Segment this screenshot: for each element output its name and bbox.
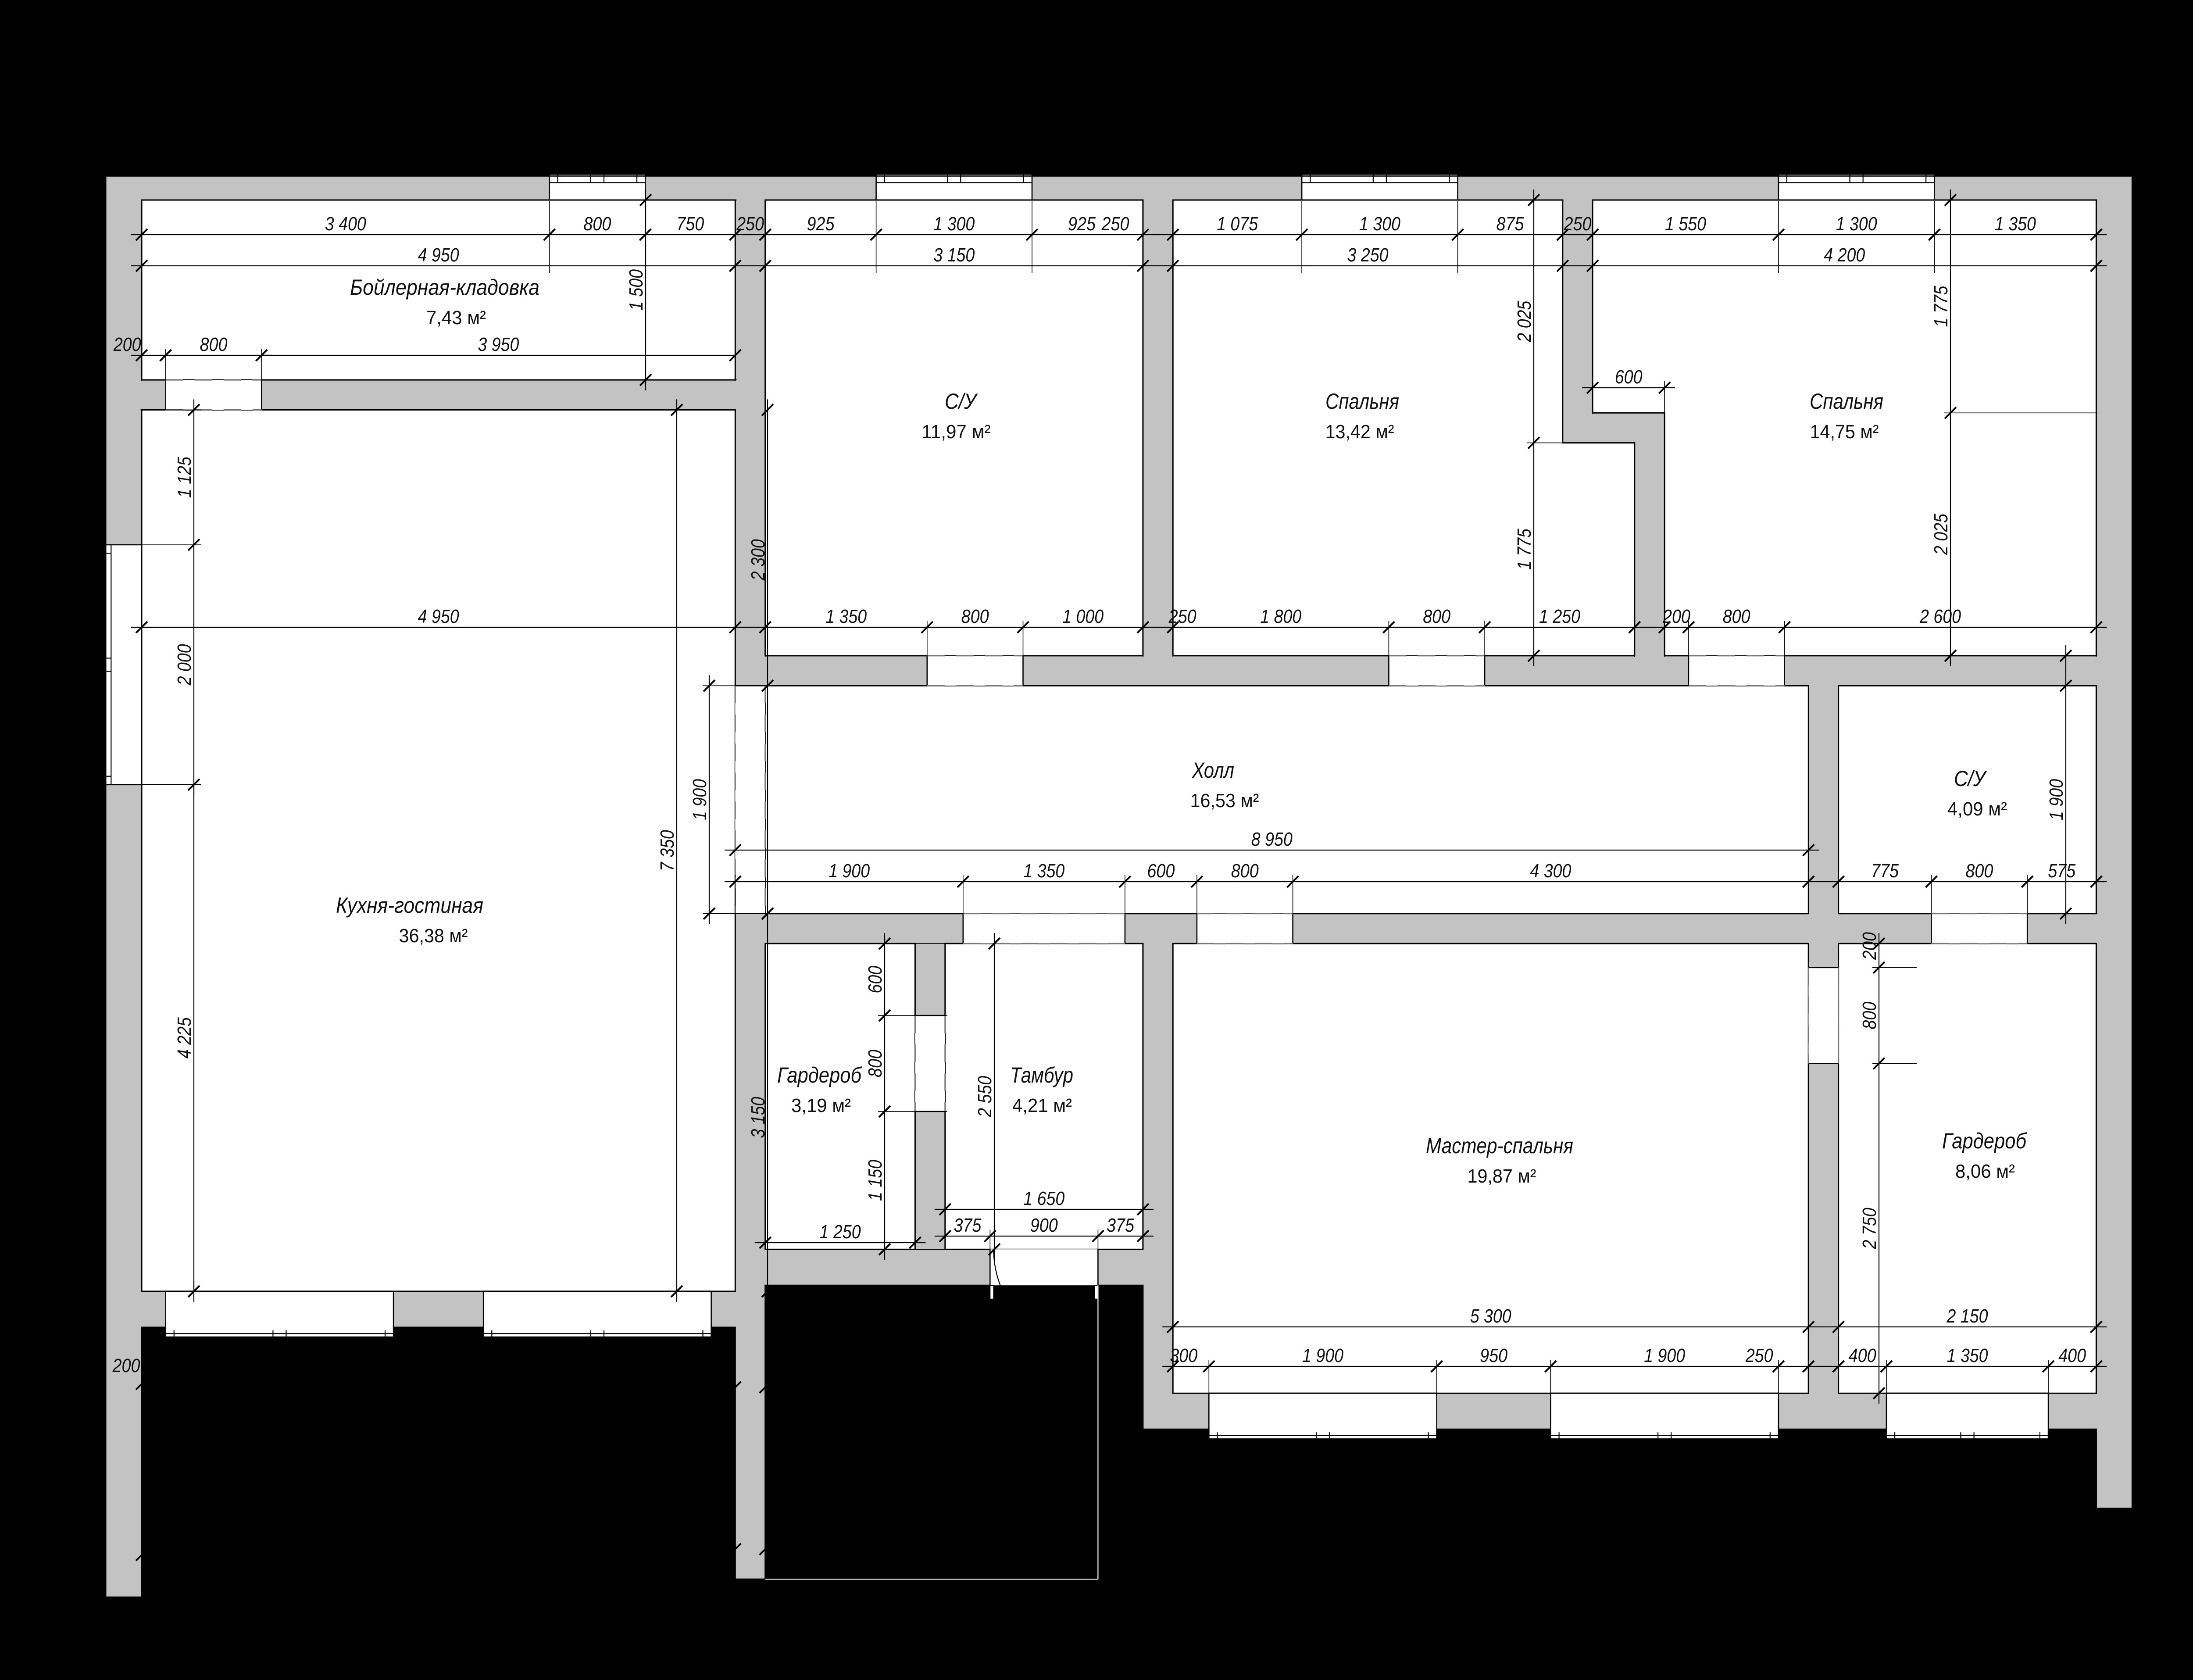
svg-text:400: 400 xyxy=(1849,1345,1876,1366)
svg-text:800: 800 xyxy=(583,213,611,235)
svg-text:8,06 м²: 8,06 м² xyxy=(1955,1161,2015,1182)
svg-text:2 025: 2 025 xyxy=(1930,514,1952,555)
svg-text:1 125: 1 125 xyxy=(174,457,195,498)
svg-text:925: 925 xyxy=(1068,213,1096,235)
svg-text:4 225: 4 225 xyxy=(174,1017,195,1058)
svg-text:1 775: 1 775 xyxy=(1930,286,1952,327)
svg-text:200: 200 xyxy=(113,334,141,355)
svg-text:800: 800 xyxy=(1859,1001,1880,1029)
svg-text:250: 250 xyxy=(1101,213,1129,235)
svg-text:800: 800 xyxy=(1965,860,1993,882)
svg-text:3 950: 3 950 xyxy=(478,334,519,355)
svg-text:575: 575 xyxy=(2048,860,2075,882)
svg-text:4 950: 4 950 xyxy=(418,606,459,627)
svg-text:Мастер-спальня: Мастер-спальня xyxy=(1426,1133,1573,1158)
svg-text:950: 950 xyxy=(1480,1345,1507,1366)
svg-text:19,87 м²: 19,87 м² xyxy=(1468,1165,1536,1187)
svg-text:1 150: 1 150 xyxy=(864,1160,886,1201)
svg-text:250: 250 xyxy=(1168,606,1197,627)
svg-text:800: 800 xyxy=(1231,860,1259,882)
svg-text:4 300: 4 300 xyxy=(1530,860,1571,882)
svg-text:1 650: 1 650 xyxy=(1023,1188,1064,1209)
svg-text:1 900: 1 900 xyxy=(2046,779,2067,820)
svg-text:250: 250 xyxy=(1564,213,1592,235)
svg-text:2 000: 2 000 xyxy=(174,644,195,686)
svg-text:925: 925 xyxy=(807,213,835,235)
svg-text:1 350: 1 350 xyxy=(825,606,867,627)
svg-text:3 400: 3 400 xyxy=(325,213,366,235)
svg-text:1 500: 1 500 xyxy=(625,269,647,311)
svg-text:250: 250 xyxy=(736,213,764,235)
svg-text:4,21 м²: 4,21 м² xyxy=(1012,1095,1072,1116)
svg-text:800: 800 xyxy=(1423,606,1450,627)
svg-text:Холл: Холл xyxy=(1192,758,1234,783)
svg-text:4 950: 4 950 xyxy=(418,244,459,266)
svg-text:600: 600 xyxy=(864,965,886,993)
svg-text:1 900: 1 900 xyxy=(1302,1345,1343,1366)
svg-text:1 300: 1 300 xyxy=(933,213,975,235)
svg-text:Гардероб: Гардероб xyxy=(777,1063,862,1087)
svg-text:800: 800 xyxy=(1723,606,1750,627)
svg-text:4 200: 4 200 xyxy=(1824,244,1865,266)
svg-text:С/У: С/У xyxy=(1954,766,1987,791)
svg-text:875: 875 xyxy=(1497,213,1524,235)
svg-text:800: 800 xyxy=(961,606,989,627)
svg-text:200: 200 xyxy=(1662,606,1690,627)
svg-text:Спальня: Спальня xyxy=(1810,389,1883,414)
svg-text:200: 200 xyxy=(112,1355,140,1376)
svg-text:2 550: 2 550 xyxy=(974,1076,996,1117)
svg-text:1 900: 1 900 xyxy=(689,779,711,820)
svg-text:36,38 м²: 36,38 м² xyxy=(399,925,468,947)
svg-text:300: 300 xyxy=(1170,1345,1197,1366)
svg-text:5 300: 5 300 xyxy=(1470,1305,1511,1327)
svg-text:1 250: 1 250 xyxy=(1539,606,1580,627)
svg-text:750: 750 xyxy=(676,213,704,235)
svg-text:900: 900 xyxy=(1030,1215,1058,1236)
svg-text:1 775: 1 775 xyxy=(1514,529,1535,570)
svg-text:200: 200 xyxy=(1859,932,1880,960)
svg-text:7 350: 7 350 xyxy=(657,830,678,871)
svg-text:1 550: 1 550 xyxy=(1665,213,1706,235)
svg-text:3,19 м²: 3,19 м² xyxy=(791,1095,851,1116)
svg-text:14,75 м²: 14,75 м² xyxy=(1810,421,1879,443)
svg-text:13,42 м²: 13,42 м² xyxy=(1325,421,1394,443)
svg-text:Тамбур: Тамбур xyxy=(1010,1063,1073,1087)
svg-text:Кухня-гостиная: Кухня-гостиная xyxy=(336,893,483,918)
svg-text:250: 250 xyxy=(1745,1345,1773,1366)
svg-text:800: 800 xyxy=(864,1050,886,1077)
svg-text:800: 800 xyxy=(200,334,228,355)
svg-text:1 250: 1 250 xyxy=(820,1221,861,1243)
svg-text:1 350: 1 350 xyxy=(1995,213,2036,235)
svg-text:600: 600 xyxy=(1147,860,1175,882)
svg-text:375: 375 xyxy=(1107,1215,1134,1236)
svg-text:2 750: 2 750 xyxy=(1859,1208,1880,1249)
svg-text:С/У: С/У xyxy=(945,389,978,414)
svg-text:Спальня: Спальня xyxy=(1325,389,1399,414)
svg-text:1 900: 1 900 xyxy=(829,860,870,882)
svg-text:1 000: 1 000 xyxy=(1062,606,1104,627)
svg-text:2 025: 2 025 xyxy=(1514,300,1535,342)
svg-text:8 950: 8 950 xyxy=(1251,829,1293,850)
svg-text:2 600: 2 600 xyxy=(1919,606,1961,627)
svg-text:2 150: 2 150 xyxy=(1947,1305,1988,1327)
svg-text:1 350: 1 350 xyxy=(1947,1345,1988,1366)
svg-text:1 075: 1 075 xyxy=(1217,213,1258,235)
svg-text:3 150: 3 150 xyxy=(747,1097,769,1138)
svg-text:Гардероб: Гардероб xyxy=(1942,1129,2027,1153)
svg-text:7,43 м²: 7,43 м² xyxy=(426,307,486,329)
svg-text:2 300: 2 300 xyxy=(747,539,769,581)
svg-text:Бойлерная-кладовка: Бойлерная-кладовка xyxy=(350,275,539,300)
svg-text:375: 375 xyxy=(954,1215,981,1236)
svg-text:600: 600 xyxy=(1615,366,1643,388)
svg-text:16,53 м²: 16,53 м² xyxy=(1190,790,1259,811)
svg-text:775: 775 xyxy=(1871,860,1899,882)
svg-text:1 800: 1 800 xyxy=(1260,606,1301,627)
svg-text:1 300: 1 300 xyxy=(1836,213,1877,235)
svg-text:11,97 м²: 11,97 м² xyxy=(922,421,991,443)
svg-text:400: 400 xyxy=(2058,1345,2086,1366)
svg-text:4,09 м²: 4,09 м² xyxy=(1947,798,2007,820)
svg-text:1 900: 1 900 xyxy=(1644,1345,1685,1366)
svg-text:3 250: 3 250 xyxy=(1347,244,1389,266)
svg-text:3 150: 3 150 xyxy=(933,244,975,266)
svg-text:1 350: 1 350 xyxy=(1023,860,1064,882)
svg-text:1 300: 1 300 xyxy=(1359,213,1400,235)
